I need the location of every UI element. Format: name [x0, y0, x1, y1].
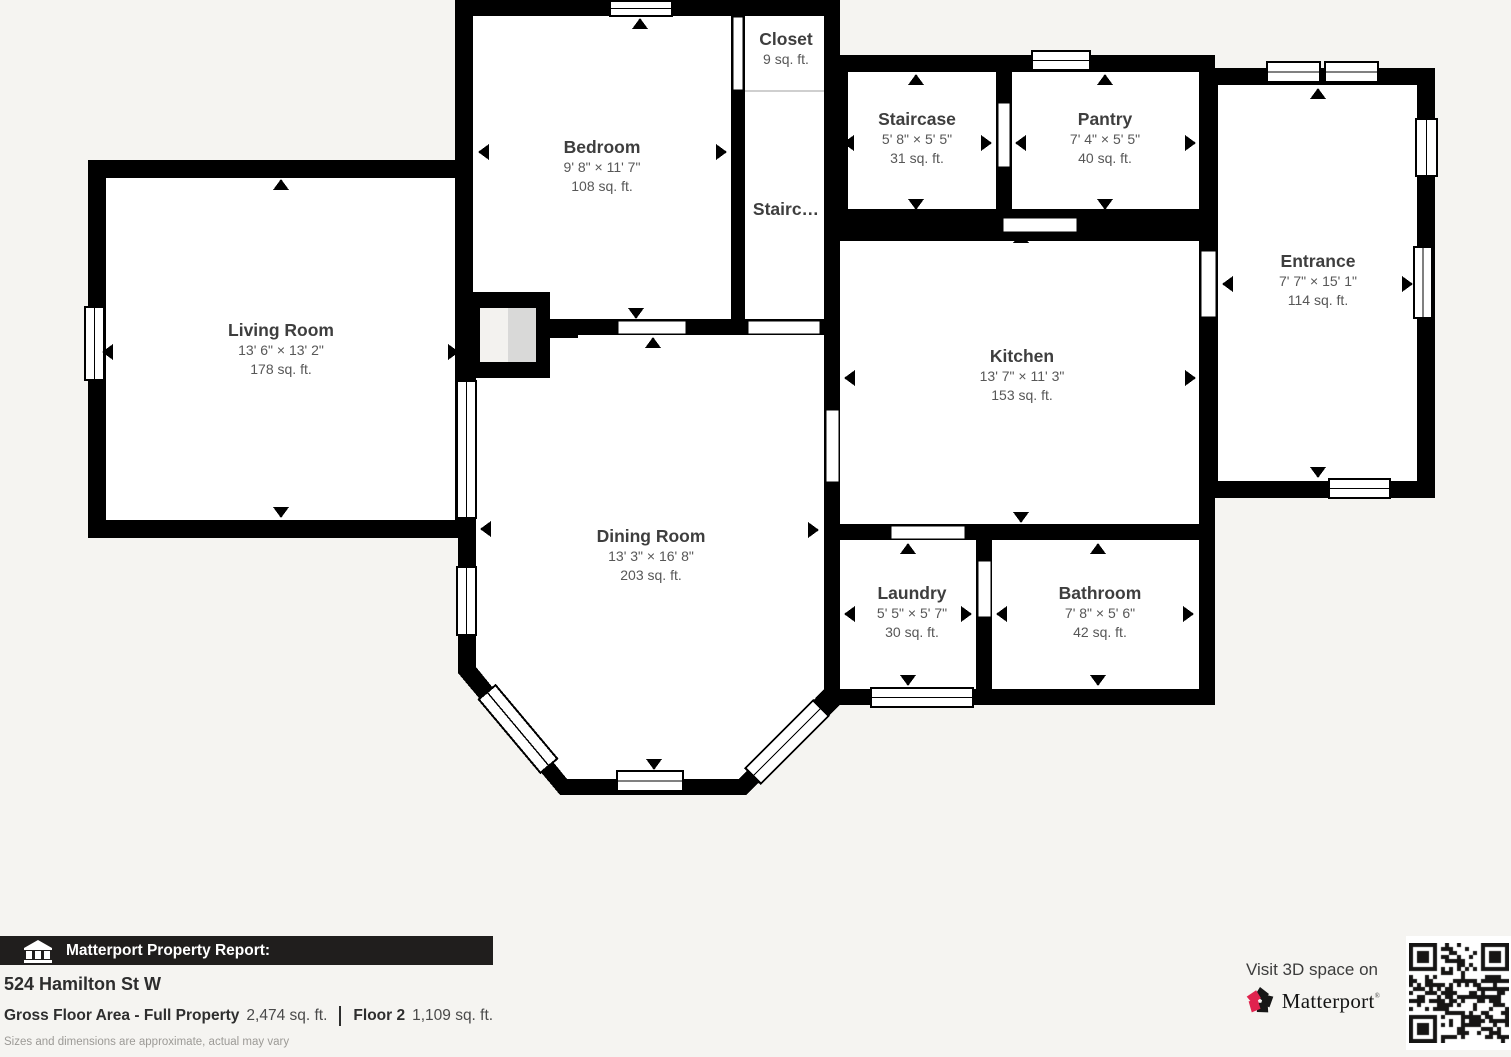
- qr-code-canvas: [1409, 943, 1509, 1043]
- report-bar-title: Matterport Property Report:: [66, 942, 270, 960]
- matterport-logo: Matterport®: [1232, 985, 1392, 1017]
- property-address: 524 Hamilton St W: [4, 974, 161, 995]
- brand-wordmark: Matterport®: [1282, 989, 1380, 1014]
- disclaimer-text: Sizes and dimensions are approximate, ac…: [4, 1036, 289, 1048]
- floor-plan: Living Room 13' 6" × 13' 2" 178 sq. ft. …: [0, 0, 1511, 930]
- floor-value: 1,109 sq. ft.: [412, 1007, 493, 1025]
- floor-label: Floor 2: [353, 1007, 405, 1025]
- floor-plan-drawing: [0, 0, 1511, 930]
- matterport-pinwheel-icon: [1244, 985, 1276, 1017]
- gross-area-value: 2,474 sq. ft.: [246, 1007, 327, 1025]
- report-title-bar: Matterport Property Report:: [0, 936, 493, 965]
- registered-mark: ®: [1375, 992, 1381, 1000]
- room-interiors: [106, 16, 1417, 779]
- house-icon: [21, 939, 55, 963]
- qr-code: [1406, 936, 1511, 1050]
- floor-area-summary: Gross Floor Area - Full Property 2,474 s…: [4, 1006, 493, 1026]
- gross-area-label: Gross Floor Area - Full Property: [4, 1007, 239, 1025]
- visit-3d-space-cta[interactable]: Visit 3D space on Matterport®: [1232, 960, 1392, 1017]
- cta-text: Visit 3D space on: [1232, 960, 1392, 980]
- divider: [339, 1006, 341, 1026]
- report-footer: Matterport Property Report: 524 Hamilton…: [0, 930, 1511, 1057]
- closet-divider-line: [745, 90, 824, 92]
